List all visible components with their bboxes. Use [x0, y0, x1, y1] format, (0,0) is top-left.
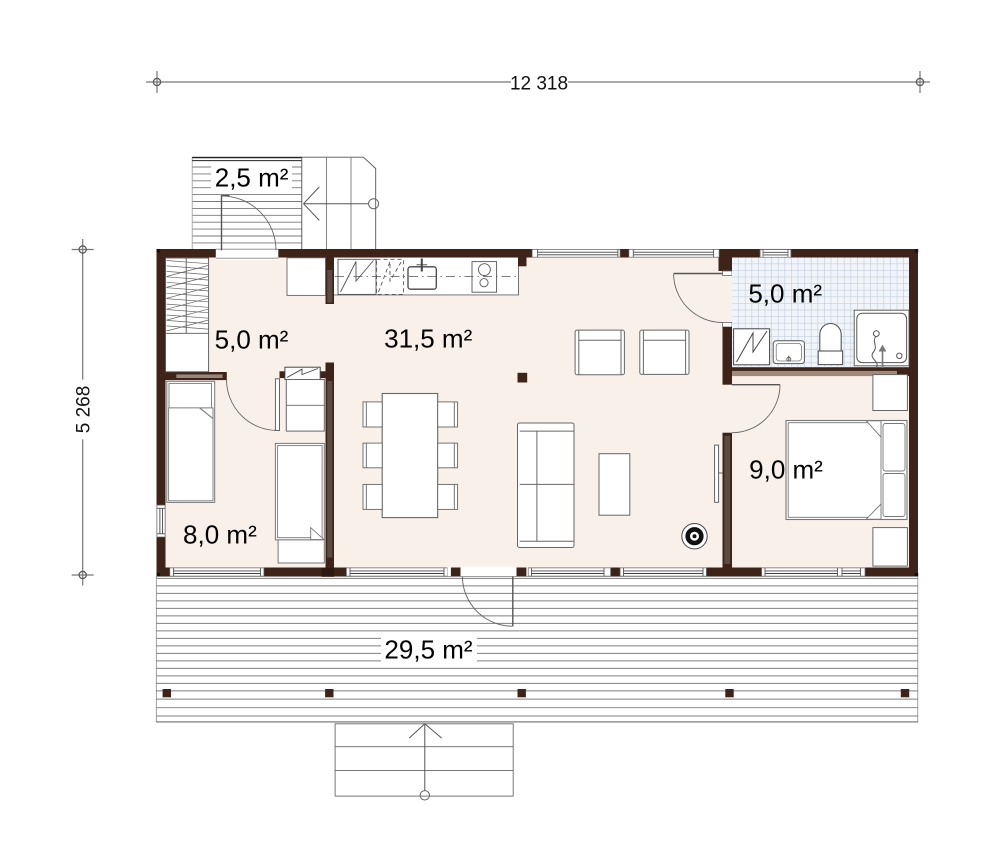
svg-text:5 268: 5 268: [74, 386, 95, 434]
svg-text:5,0 m²: 5,0 m²: [215, 325, 289, 355]
svg-text:9,0 m²: 9,0 m²: [749, 455, 823, 485]
svg-text:12 318: 12 318: [510, 74, 568, 95]
svg-text:31,5 m²: 31,5 m²: [384, 324, 472, 354]
svg-text:29,5 m²: 29,5 m²: [384, 634, 472, 664]
svg-text:5,0 m²: 5,0 m²: [748, 278, 822, 308]
svg-text:2,5 m²: 2,5 m²: [215, 163, 289, 193]
svg-text:8,0 m²: 8,0 m²: [183, 520, 257, 550]
